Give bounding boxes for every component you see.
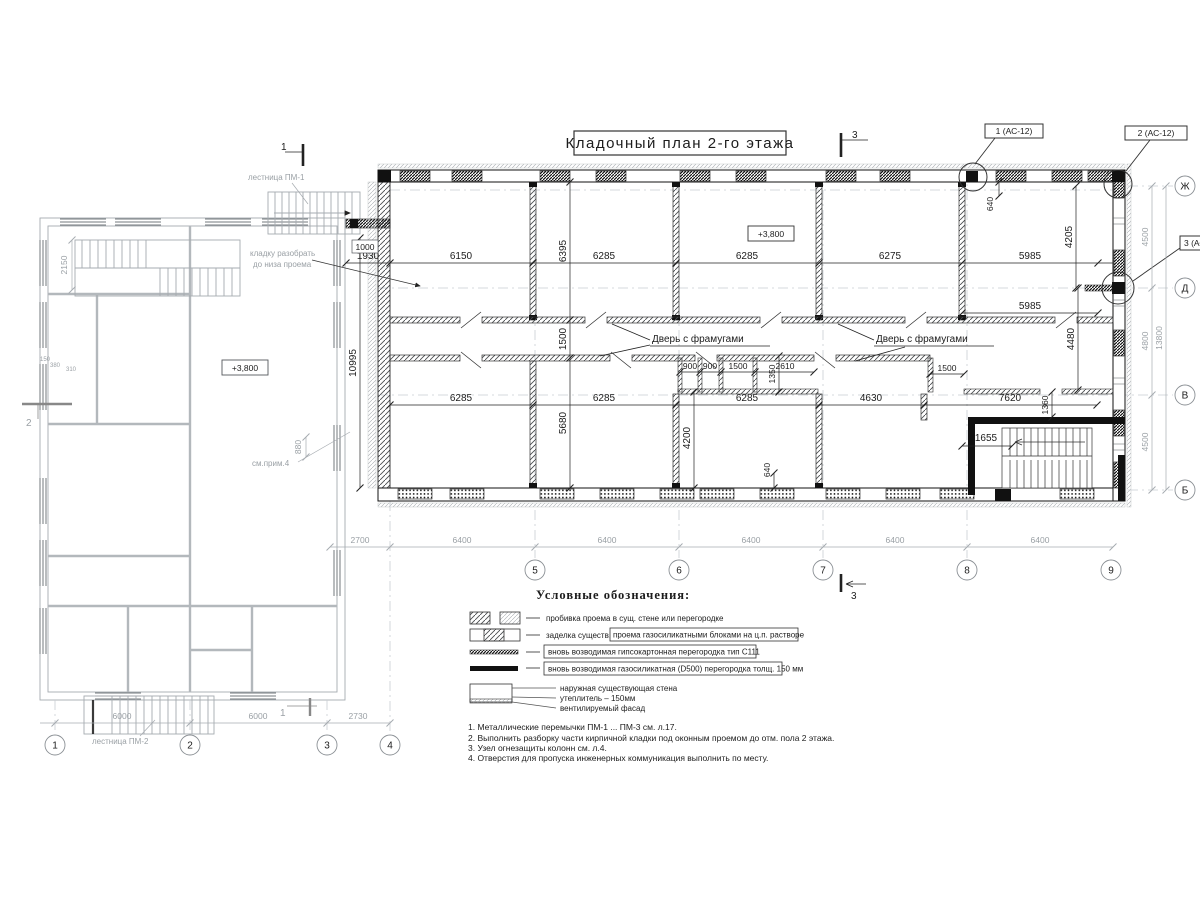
svg-text:Д: Д [1182,284,1189,295]
stair-interior [75,240,240,296]
svg-text:кладку разобрать: кладку разобрать [250,249,315,258]
svg-text:4: 4 [387,741,393,752]
svg-text:вентилируемый фасад: вентилируемый фасад [560,704,645,713]
svg-text:5985: 5985 [1019,251,1042,262]
svg-text:Условные обозначения:: Условные обозначения: [536,588,690,602]
corridor-lower-wall [390,352,1113,394]
svg-text:заделка существ.: заделка существ. [546,631,611,640]
svg-text:2610: 2610 [776,361,795,371]
dimensions-gray [40,186,1166,723]
svg-text:4. Отверстия для пропуска инже: 4. Отверстия для пропуска инженерных ком… [468,753,768,763]
svg-text:900: 900 [683,361,697,371]
svg-text:проема газосиликатными блоками: проема газосиликатными блоками на ц.п. р… [613,631,805,640]
title-block: Кладочный план 2-го этажа [566,131,795,155]
svg-text:7620: 7620 [999,393,1022,404]
svg-text:1: 1 [280,708,286,719]
svg-text:4800: 4800 [1140,331,1150,350]
svg-text:1. Металлические перемычки ПМ: 1. Металлические перемычки ПМ-1 ... ПМ-3… [468,722,677,732]
svg-text:+3,800: +3,800 [232,363,259,373]
svg-text:5: 5 [532,566,538,577]
svg-text:наружная существующая стена: наружная существующая стена [560,684,678,693]
svg-text:6: 6 [676,566,682,577]
svg-text:Б: Б [1182,486,1189,497]
svg-text:13800: 13800 [1154,326,1164,350]
svg-text:вновь возводимая газосиликатна: вновь возводимая газосиликатная (D500) п… [548,665,803,674]
svg-text:см.прим.4: см.прим.4 [252,459,290,468]
svg-text:6285: 6285 [593,251,616,262]
svg-text:640: 640 [762,463,772,477]
partitions-lower [529,361,927,488]
svg-text:пробивка проема в сущ. стене: пробивка проема в сущ. стене или перегор… [546,614,724,623]
detail-callouts [959,124,1200,304]
svg-text:Ж: Ж [1180,182,1190,193]
svg-text:6000: 6000 [113,711,132,721]
existing-building [40,192,360,734]
svg-text:6400: 6400 [598,535,617,545]
svg-text:2: 2 [187,741,193,752]
svg-text:6285: 6285 [450,393,473,404]
svg-text:9: 9 [1108,566,1114,577]
callout-2: 2 (АС-12) [1138,128,1175,138]
callout-3: 3 (АС-12) [1184,238,1200,248]
svg-text:6285: 6285 [593,393,616,404]
svg-text:6285: 6285 [736,393,759,404]
svg-text:6395: 6395 [558,239,569,262]
junction-node [350,219,358,228]
svg-text:6150: 6150 [450,251,473,262]
svg-text:7: 7 [820,566,826,577]
svg-text:лестница ПМ-1: лестница ПМ-1 [248,173,305,182]
svg-text:1350: 1350 [767,364,777,383]
svg-text:4500: 4500 [1140,432,1150,451]
svg-text:2. Выполнить разборку части ки: 2. Выполнить разборку части кирпичной кл… [468,733,834,743]
page-title: Кладочный план 2-го этажа [566,135,795,152]
svg-text:3: 3 [324,741,330,752]
svg-text:3: 3 [851,591,857,602]
svg-text:2700: 2700 [351,535,370,545]
svg-text:6400: 6400 [742,535,761,545]
svg-text:Дверь с фрамугами: Дверь с фрамугами [652,333,744,345]
svg-text:1000: 1000 [356,242,375,252]
svg-text:6275: 6275 [879,251,902,262]
svg-text:2: 2 [26,418,32,429]
svg-text:В: В [1182,391,1189,402]
svg-text:1: 1 [52,741,58,752]
svg-text:900: 900 [703,361,717,371]
floor-plan-canvas: 1 (АС-12) 2 (АС-12) 3 (АС-12) Кладочный … [0,0,1200,900]
svg-text:4500: 4500 [1140,227,1150,246]
svg-text:4630: 4630 [860,393,883,404]
svg-text:640: 640 [985,197,995,211]
svg-text:4200: 4200 [682,426,693,449]
svg-text:Дверь с фрамугами: Дверь с фрамугами [876,333,968,345]
svg-text:до низа проема: до низа проема [253,260,312,269]
svg-text:вновь возводимая гипсокартонна: вновь возводимая гипсокартонная перегоро… [548,648,760,657]
svg-text:2730: 2730 [349,711,368,721]
svg-text:310: 310 [66,367,77,373]
svg-text:1500: 1500 [938,363,957,373]
svg-text:1360: 1360 [1040,395,1050,414]
svg-text:1: 1 [281,142,287,153]
notes: 1. Металлические перемычки ПМ-1 ... ПМ-3… [468,722,834,763]
svg-text:утеплитель – 150мм: утеплитель – 150мм [560,694,635,703]
legend: Условные обозначения: пробивка проема в … [470,588,805,713]
svg-text:1500: 1500 [558,327,569,350]
svg-text:6400: 6400 [1031,535,1050,545]
svg-text:3. Узел огнезащиты колонн см.: 3. Узел огнезащиты колонн см. л.4. [468,743,607,753]
svg-text:1655: 1655 [975,433,998,444]
stair-pm2 [84,696,214,734]
svg-text:10995: 10995 [348,349,359,377]
drawing-sheet: 1 (АС-12) 2 (АС-12) 3 (АС-12) Кладочный … [0,0,1200,900]
callout-1: 1 (АС-12) [996,126,1033,136]
svg-text:1500: 1500 [729,361,748,371]
svg-text:6285: 6285 [736,251,759,262]
svg-text:2150: 2150 [59,255,69,274]
svg-text:4480: 4480 [1066,327,1077,350]
svg-text:6400: 6400 [886,535,905,545]
svg-text:3: 3 [852,130,858,141]
svg-text:8: 8 [964,566,970,577]
svg-text:5680: 5680 [558,411,569,434]
svg-text:4205: 4205 [1064,225,1075,248]
svg-text:лестница ПМ-2: лестница ПМ-2 [92,737,149,746]
svg-text:6400: 6400 [453,535,472,545]
svg-text:+3,800: +3,800 [758,229,785,239]
svg-text:6000: 6000 [249,711,268,721]
svg-text:380: 380 [50,363,61,369]
corridor-upper-wall [390,312,1113,328]
svg-text:880: 880 [293,440,303,454]
svg-text:5985: 5985 [1019,301,1042,312]
